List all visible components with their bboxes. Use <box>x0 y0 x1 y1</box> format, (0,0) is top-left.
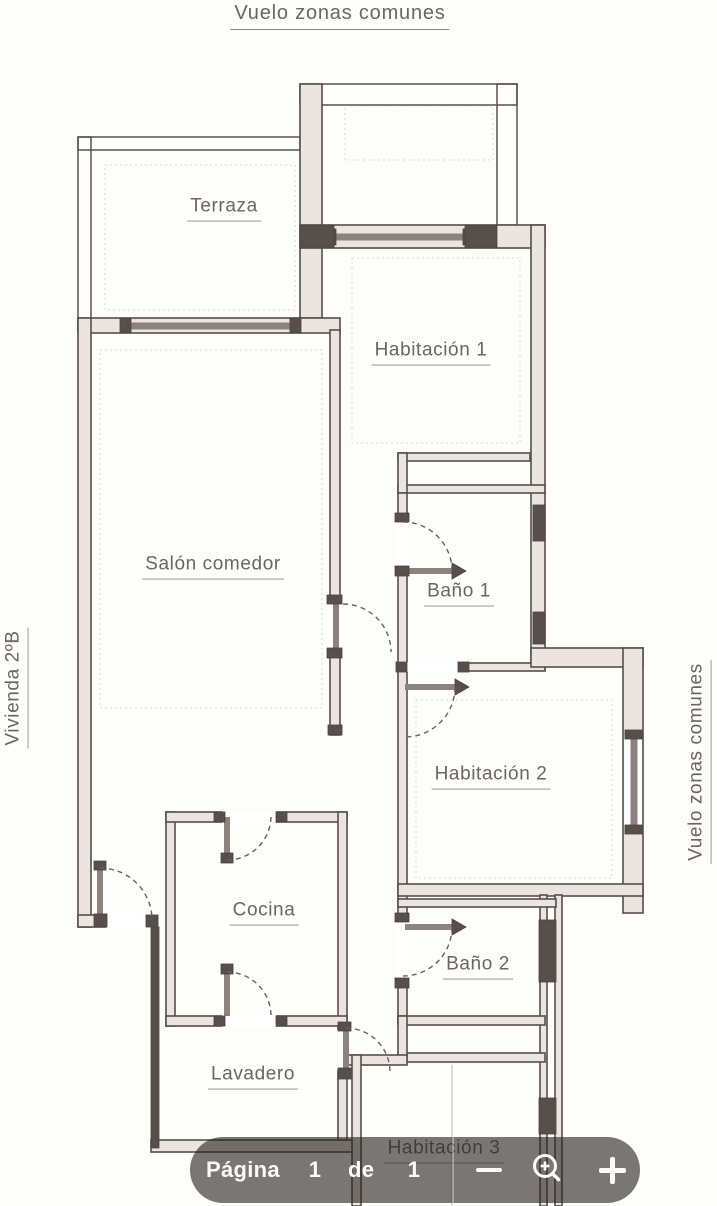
room-label-habitacion1: Habitación 1 <box>372 341 491 366</box>
page-label: Página <box>206 1157 280 1183</box>
zoom-button[interactable] <box>526 1137 570 1203</box>
page-of-label: de <box>348 1157 374 1183</box>
page-total-label: 1 <box>404 1157 424 1183</box>
room-label-lavadero: Lavadero <box>208 1065 298 1090</box>
doors-group <box>94 513 469 1079</box>
room-label-cocina: Cocina <box>230 901 299 926</box>
floor-plan-drawing <box>0 0 717 1206</box>
pdf-viewer-toolbar: Página 1 de 1 <box>190 1137 640 1203</box>
pdf-viewer-page: { "page": { "top_label": "Vuelo zonas co… <box>0 0 717 1206</box>
minus-icon <box>476 1168 502 1172</box>
room-label-bano2: Baño 2 <box>443 955 513 980</box>
room-label-habitacion2: Habitación 2 <box>432 765 551 790</box>
right-edge-label: Vuelo zonas comunes <box>687 660 712 864</box>
room-label-salon: Salón comedor <box>142 555 284 580</box>
room-label-bano1: Baño 1 <box>424 582 494 607</box>
zoom-out-button[interactable] <box>468 1137 510 1203</box>
terrace-parapet-walls <box>78 84 517 333</box>
zoom-in-button[interactable] <box>590 1137 634 1203</box>
page-number-input[interactable]: 1 <box>302 1157 328 1183</box>
plus-icon <box>599 1157 626 1184</box>
top-edge-label: Vuelo zonas comunes <box>230 2 449 30</box>
toolbar-divider <box>452 1137 454 1203</box>
magnifier-plus-icon <box>530 1152 566 1188</box>
room-label-terraza: Terraza <box>187 197 261 222</box>
walls-group <box>78 84 643 1206</box>
windows-group <box>120 225 642 834</box>
left-edge-label: Vivienda 2ºB <box>4 627 29 748</box>
